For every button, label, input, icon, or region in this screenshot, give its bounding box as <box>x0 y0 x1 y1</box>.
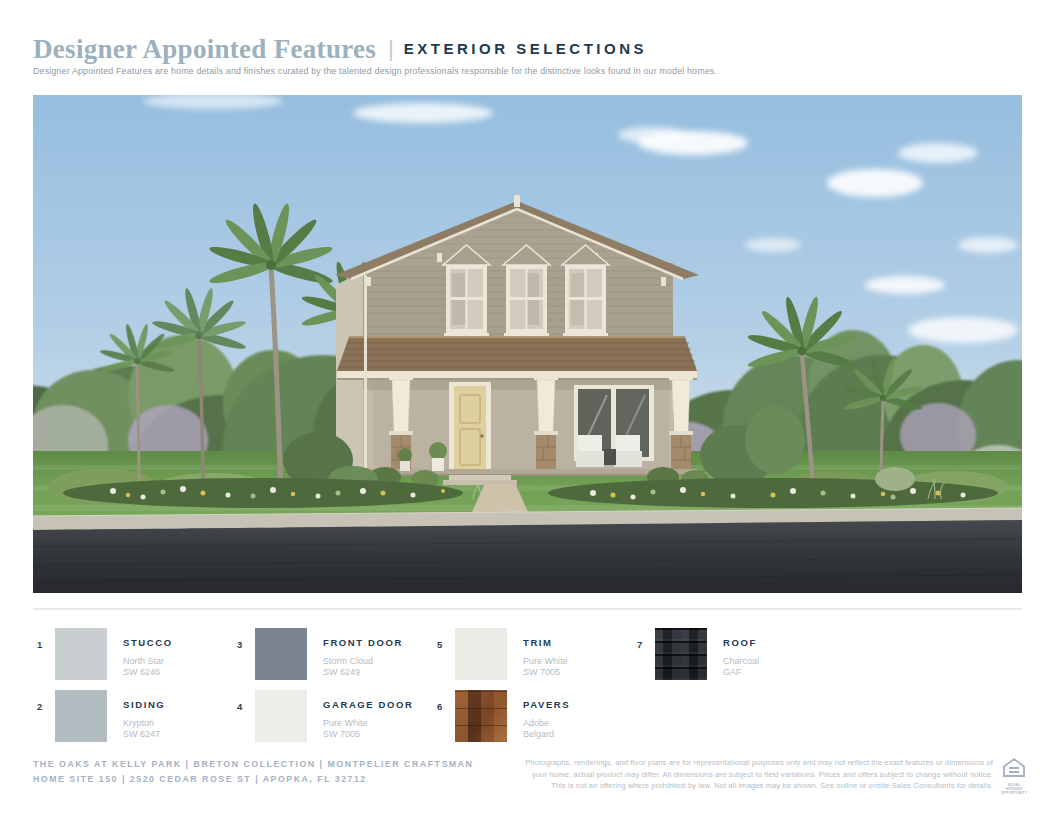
pavers-swatch <box>455 690 507 742</box>
disclaimer-line-2: your home; actual product may differ. Al… <box>523 769 993 781</box>
stucco-swatch <box>55 628 107 680</box>
selection-name: Storm Cloud <box>323 656 403 667</box>
selections-grid: 1 STUCCO North Star SW 6246 2 SIDING Kry… <box>37 628 837 752</box>
selection-front-door: 3 FRONT DOOR Storm Cloud SW 6249 <box>237 628 437 690</box>
selection-label: SIDING <box>123 699 165 710</box>
disclaimer-line-3: This is not an offering where prohibited… <box>523 780 993 792</box>
selection-garage-door: 4 GARAGE DOOR Pure White SW 7005 <box>237 690 437 752</box>
equal-housing-icon <box>1001 757 1027 779</box>
selection-code: Belgard <box>523 729 570 740</box>
page-header: Designer Appointed Features|EXTERIOR SEL… <box>33 34 647 65</box>
community-line-1: THE OAKS AT KELLY PARK | BRETON COLLECTI… <box>33 757 473 772</box>
roof-swatch <box>655 628 707 680</box>
garage-door-swatch <box>255 690 307 742</box>
page-subtitle-tag: EXTERIOR SELECTIONS <box>404 40 647 57</box>
community-info: THE OAKS AT KELLY PARK | BRETON COLLECTI… <box>33 757 473 787</box>
trim-swatch <box>455 628 507 680</box>
disclaimer-line-1: Photographs, renderings, and floor plans… <box>523 757 993 769</box>
selection-name: North Star <box>123 656 173 667</box>
siding-swatch <box>55 690 107 742</box>
selection-number: 5 <box>437 628 455 650</box>
front-door-swatch <box>255 628 307 680</box>
selection-number: 7 <box>637 628 655 650</box>
selection-label: ROOF <box>723 637 759 648</box>
selection-number: 3 <box>237 628 255 650</box>
flyer-page: Designer Appointed Features|EXTERIOR SEL… <box>0 0 1055 815</box>
selection-pavers: 6 PAVERS Adobe Belgard <box>437 690 637 752</box>
title-separator: | <box>388 36 394 61</box>
selection-name: Charcoal <box>723 656 759 667</box>
selection-trim: 5 TRIM Pure White SW 7005 <box>437 628 637 690</box>
section-divider <box>33 608 1022 610</box>
selection-stucco: 1 STUCCO North Star SW 6246 <box>37 628 237 690</box>
selection-roof: 7 ROOF Charcoal GAF <box>637 628 837 690</box>
selection-label: STUCCO <box>123 637 173 648</box>
selection-siding: 2 SIDING Krypton SW 6247 <box>37 690 237 752</box>
selection-name: Krypton <box>123 718 165 729</box>
legal-disclaimer: Photographs, renderings, and floor plans… <box>523 757 993 792</box>
equal-housing-logo: EQUAL HOUSING OPPORTUNITY <box>999 757 1029 795</box>
selection-code: SW 6247 <box>123 729 165 740</box>
selection-code: GAF <box>723 667 759 678</box>
equal-housing-label: EQUAL HOUSING OPPORTUNITY <box>999 783 1029 795</box>
selection-number: 1 <box>37 628 55 650</box>
selection-code: SW 6249 <box>323 667 403 678</box>
selection-number: 6 <box>437 690 455 712</box>
community-line-2: HOME SITE 150 | 2520 CEDAR ROSE ST | APO… <box>33 772 473 787</box>
selection-label: FRONT DOOR <box>323 637 403 648</box>
selection-number: 2 <box>37 690 55 712</box>
page-description: Designer Appointed Features are home det… <box>33 66 717 76</box>
house-rendering <box>33 95 1022 593</box>
selection-code: SW 6246 <box>123 667 173 678</box>
selection-name: Pure White <box>523 656 568 667</box>
selection-name: Pure White <box>323 718 413 729</box>
selection-label: GARAGE DOOR <box>323 699 413 710</box>
page-title: Designer Appointed Features <box>33 34 376 64</box>
selection-number: 4 <box>237 690 255 712</box>
selection-label: TRIM <box>523 637 568 648</box>
selection-label: PAVERS <box>523 699 570 710</box>
selection-name: Adobe <box>523 718 570 729</box>
selection-code: SW 7005 <box>323 729 413 740</box>
selection-code: SW 7005 <box>523 667 568 678</box>
